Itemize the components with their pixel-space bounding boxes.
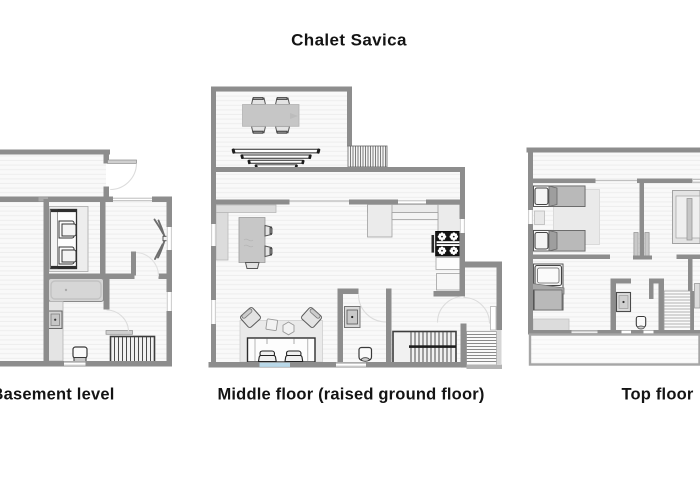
svg-text:Basement level: Basement level: [0, 386, 114, 404]
svg-text:Chalet Savica: Chalet Savica: [291, 31, 407, 50]
svg-text:Middle floor (raised ground fl: Middle floor (raised ground floor): [217, 386, 484, 404]
svg-text:Top floor: Top floor: [621, 386, 693, 404]
